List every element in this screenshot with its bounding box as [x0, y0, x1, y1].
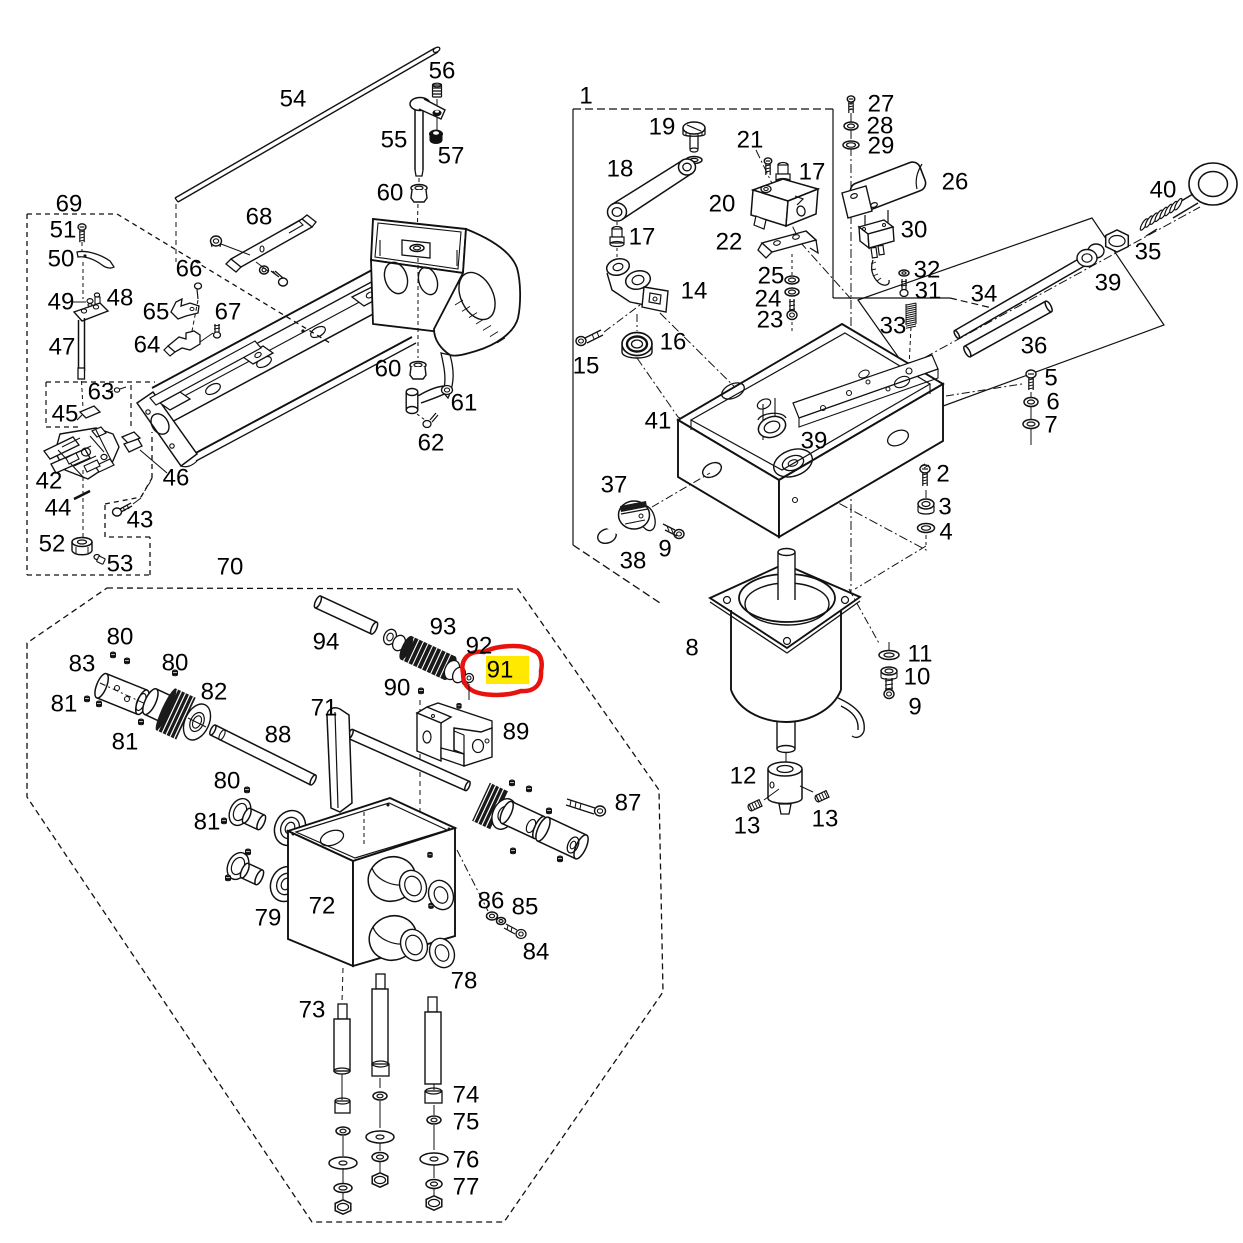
- svg-text:9: 9: [908, 694, 921, 721]
- svg-text:73: 73: [299, 997, 326, 1024]
- svg-text:39: 39: [1095, 270, 1122, 297]
- svg-text:15: 15: [573, 353, 600, 380]
- svg-text:75: 75: [453, 1109, 480, 1136]
- svg-text:82: 82: [201, 679, 228, 706]
- svg-text:11: 11: [908, 641, 933, 668]
- svg-text:20: 20: [709, 191, 736, 218]
- svg-text:91: 91: [487, 657, 514, 684]
- svg-text:54: 54: [280, 86, 307, 113]
- svg-text:61: 61: [451, 390, 478, 417]
- svg-text:41: 41: [645, 408, 672, 435]
- svg-text:40: 40: [1150, 177, 1177, 204]
- svg-text:29: 29: [868, 133, 895, 160]
- svg-text:81: 81: [51, 691, 78, 718]
- svg-text:2: 2: [936, 461, 949, 488]
- svg-text:26: 26: [942, 169, 969, 196]
- svg-text:88: 88: [265, 722, 292, 749]
- svg-text:76: 76: [453, 1147, 480, 1174]
- svg-text:7: 7: [1044, 412, 1057, 439]
- svg-text:87: 87: [615, 790, 642, 817]
- svg-text:89: 89: [503, 719, 530, 746]
- svg-text:51: 51: [50, 217, 77, 244]
- svg-text:12: 12: [730, 763, 757, 790]
- svg-text:48: 48: [107, 285, 134, 312]
- svg-text:71: 71: [311, 695, 338, 722]
- svg-text:80: 80: [214, 768, 241, 795]
- svg-text:83: 83: [69, 651, 96, 678]
- svg-text:21: 21: [737, 127, 764, 154]
- svg-text:34: 34: [971, 281, 998, 308]
- svg-text:39: 39: [801, 428, 828, 455]
- svg-text:86: 86: [478, 888, 505, 915]
- svg-text:18: 18: [607, 156, 634, 183]
- svg-text:84: 84: [523, 939, 550, 966]
- svg-text:1: 1: [579, 83, 592, 110]
- svg-text:81: 81: [194, 809, 221, 836]
- svg-text:63: 63: [88, 379, 115, 406]
- svg-text:25: 25: [758, 263, 785, 290]
- svg-text:5: 5: [1044, 365, 1057, 392]
- svg-text:46: 46: [163, 465, 190, 492]
- svg-text:80: 80: [162, 650, 189, 677]
- svg-text:66: 66: [176, 256, 203, 283]
- svg-text:67: 67: [215, 299, 242, 326]
- svg-text:36: 36: [1021, 333, 1048, 360]
- svg-text:37: 37: [601, 472, 628, 499]
- svg-text:10: 10: [904, 664, 931, 691]
- svg-text:74: 74: [453, 1082, 480, 1109]
- svg-text:3: 3: [938, 494, 951, 521]
- svg-text:68: 68: [246, 204, 273, 231]
- svg-text:70: 70: [217, 554, 244, 581]
- svg-text:45: 45: [52, 401, 79, 428]
- svg-text:77: 77: [453, 1174, 480, 1201]
- svg-text:49: 49: [48, 289, 75, 316]
- svg-text:60: 60: [377, 180, 404, 207]
- svg-text:19: 19: [649, 114, 676, 141]
- svg-text:17: 17: [629, 224, 656, 251]
- svg-text:69: 69: [56, 191, 83, 218]
- svg-text:13: 13: [734, 813, 761, 840]
- svg-text:78: 78: [451, 968, 478, 995]
- svg-text:60: 60: [375, 356, 402, 383]
- svg-text:24: 24: [755, 286, 782, 313]
- svg-text:85: 85: [512, 894, 539, 921]
- svg-text:42: 42: [36, 468, 63, 495]
- svg-text:13: 13: [812, 806, 839, 833]
- svg-text:50: 50: [48, 246, 75, 273]
- svg-text:64: 64: [134, 332, 161, 359]
- svg-text:38: 38: [620, 548, 647, 575]
- svg-text:32: 32: [914, 257, 941, 284]
- svg-text:94: 94: [313, 629, 340, 656]
- svg-text:52: 52: [39, 531, 66, 558]
- svg-text:56: 56: [429, 58, 456, 85]
- svg-text:79: 79: [255, 905, 282, 932]
- svg-text:47: 47: [49, 334, 76, 361]
- svg-text:43: 43: [127, 507, 154, 534]
- svg-text:93: 93: [430, 614, 457, 641]
- svg-text:53: 53: [107, 551, 134, 578]
- svg-text:4: 4: [939, 519, 952, 546]
- svg-text:55: 55: [381, 127, 408, 154]
- svg-text:65: 65: [143, 299, 170, 326]
- svg-text:22: 22: [716, 229, 743, 256]
- svg-text:35: 35: [1135, 239, 1162, 266]
- svg-text:9: 9: [658, 536, 671, 563]
- svg-text:92: 92: [466, 633, 493, 660]
- svg-text:57: 57: [438, 143, 465, 170]
- svg-text:72: 72: [309, 893, 336, 920]
- svg-text:33: 33: [880, 313, 907, 340]
- svg-text:90: 90: [384, 675, 411, 702]
- svg-text:80: 80: [107, 624, 134, 651]
- svg-text:14: 14: [681, 278, 708, 305]
- svg-text:16: 16: [660, 329, 687, 356]
- svg-text:8: 8: [685, 635, 698, 662]
- svg-text:44: 44: [45, 495, 72, 522]
- svg-text:17: 17: [799, 159, 826, 186]
- svg-text:30: 30: [901, 217, 928, 244]
- svg-text:81: 81: [112, 729, 139, 756]
- svg-text:62: 62: [418, 430, 445, 457]
